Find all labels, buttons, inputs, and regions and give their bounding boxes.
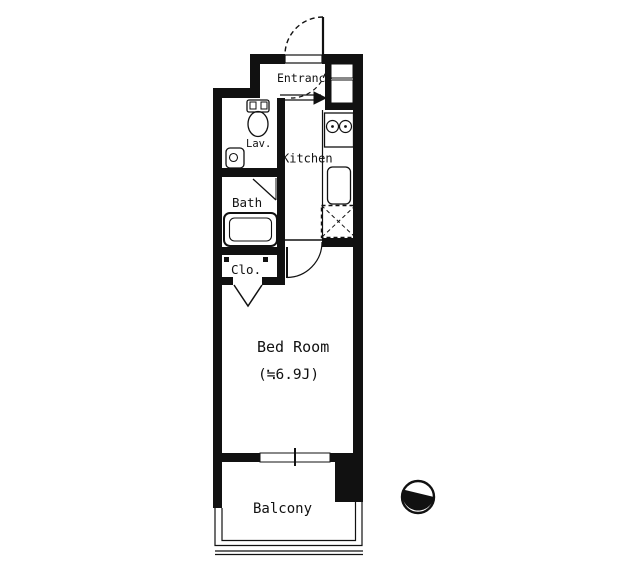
closet-track-dot-right bbox=[263, 257, 268, 262]
bedroom-door-icon bbox=[285, 240, 322, 278]
stove-burner-left-dot bbox=[331, 125, 334, 128]
wall-outer-right bbox=[353, 54, 363, 462]
entrance-door-swing-arc bbox=[285, 17, 323, 54]
toilet-tank-detail-right bbox=[261, 102, 267, 109]
closet-folding-door bbox=[234, 285, 262, 306]
meter-boxes bbox=[331, 64, 353, 103]
walls bbox=[213, 54, 363, 508]
stove-burner-right-dot bbox=[344, 125, 347, 128]
window-icon bbox=[260, 448, 330, 466]
lavatory-fixtures bbox=[226, 100, 269, 168]
lav-sink-basin bbox=[230, 154, 238, 162]
lav-sink-icon bbox=[226, 148, 244, 168]
pillar bbox=[335, 460, 363, 502]
wall-clo-bottom-left bbox=[215, 277, 233, 285]
label-balcony: Balcony bbox=[253, 501, 312, 517]
bathtub-inner bbox=[230, 218, 272, 241]
closet-track-dot-left bbox=[224, 257, 229, 262]
label-bedroom-size: (≒6.9J) bbox=[258, 367, 319, 383]
bedroom-door-swing-arc bbox=[287, 242, 322, 278]
floor-plan: Entrance Lav. Kitchen Bath Clo. Bed Room… bbox=[0, 0, 640, 569]
wall-bedroom-bottom-left bbox=[213, 453, 260, 462]
toilet-tank-detail-left bbox=[250, 102, 256, 109]
label-closet: Clo. bbox=[231, 262, 261, 277]
bath-fixtures bbox=[224, 178, 277, 246]
label-entrance: Entrance bbox=[277, 71, 332, 85]
stove-icon bbox=[325, 113, 354, 147]
entrance-door-icon bbox=[285, 17, 327, 98]
label-bedroom: Bed Room bbox=[257, 338, 329, 356]
wall-outer-left bbox=[213, 88, 222, 508]
entrance-threshold bbox=[285, 55, 322, 63]
north-compass-icon bbox=[402, 481, 434, 513]
meter-box-lower bbox=[331, 80, 353, 103]
kitchen-sink-icon bbox=[328, 167, 351, 204]
toilet-bowl-icon bbox=[248, 112, 268, 137]
label-lavatory: Lav. bbox=[246, 138, 271, 150]
meter-box-upper bbox=[331, 64, 353, 78]
label-kitchen: Kitchen bbox=[282, 152, 333, 166]
step-arrow-icon bbox=[314, 92, 326, 104]
entrance-step bbox=[280, 92, 326, 104]
wall-clo-bottom-right bbox=[262, 277, 285, 285]
wall-hall-bottom bbox=[325, 103, 353, 110]
refrigerator-space-icon bbox=[322, 206, 356, 238]
wall-sanitary-right bbox=[277, 98, 285, 285]
floor-plan-canvas: Entrance Lav. Kitchen Bath Clo. Bed Room… bbox=[0, 0, 640, 569]
label-bath: Bath bbox=[232, 195, 262, 210]
wall-lav-bath-divider bbox=[215, 168, 285, 177]
kitchen-fixtures bbox=[322, 110, 356, 238]
wall-bath-clo-divider bbox=[215, 247, 285, 255]
wall-kitchen-bedroom bbox=[322, 238, 363, 247]
